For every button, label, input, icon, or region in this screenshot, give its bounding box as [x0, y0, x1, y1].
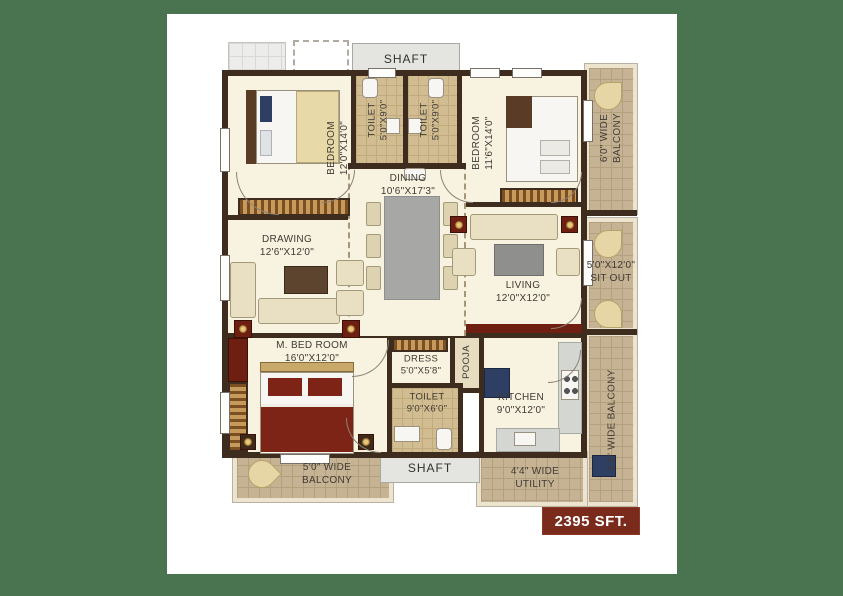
plant-icon [594, 230, 622, 258]
label-balcony-bottom: 5'0" WIDE BALCONY [302, 461, 352, 487]
label-master-bedroom: M. BED ROOM 16'0"X12'0" [276, 339, 348, 365]
toilet3-sink [394, 426, 420, 442]
mbed-pillow [268, 378, 302, 396]
area-badge: 2395 SFT. [542, 507, 640, 535]
label-pooja: POOJA [461, 345, 473, 379]
bed2-pillow [540, 140, 570, 156]
window [220, 128, 230, 172]
label-sit-out: 5'0"X12'0" SIT OUT [587, 259, 635, 285]
label-balcony-right: 6'0" WIDE BALCONY [598, 113, 624, 163]
drawing-coffee-table [284, 266, 328, 294]
drawing-sofa [258, 298, 340, 324]
drawing-side-table [234, 320, 252, 338]
living-side-table-2 [561, 216, 578, 233]
window [512, 68, 542, 78]
toilet3-wc [436, 428, 452, 450]
window [220, 255, 230, 301]
mbed-side-table [240, 434, 256, 450]
dining-chair [366, 234, 381, 258]
bed1-pillow [260, 96, 272, 122]
label-bedroom1: BEDROOM 12'0"X14'0" [325, 121, 351, 175]
balcony-divider-top [585, 210, 637, 216]
dining-table [384, 196, 440, 300]
window [368, 68, 396, 78]
drawing-side-table-2 [342, 320, 360, 338]
toilet1-wc [362, 78, 378, 98]
label-drawing: DRAWING 12'6"X12'0" [260, 233, 314, 259]
mbed-pillow-2 [308, 378, 342, 396]
dress-rack [392, 338, 448, 352]
living-armchair [452, 248, 476, 276]
dining-chair [366, 266, 381, 290]
bed2-headboard [506, 96, 532, 128]
bed1-pillow-2 [260, 130, 272, 156]
living-side-table [450, 216, 467, 233]
kitchen-sink [514, 432, 536, 446]
label-toilet2: TOILET 5'0"X9'0" [419, 100, 444, 141]
drawing-loveseat [230, 262, 256, 318]
living-sofa [470, 214, 558, 240]
label-living: LIVING 12'0"X12'0" [496, 279, 550, 305]
plant-icon [594, 82, 622, 110]
shaft-bottom-label: SHAFT [408, 461, 452, 475]
drawing-armchair-2 [336, 290, 364, 316]
window [583, 100, 593, 142]
drawing-armchair [336, 260, 364, 286]
toilet2-wc [428, 78, 444, 98]
window [470, 68, 500, 78]
plant-icon [594, 300, 622, 328]
dining-chair [366, 202, 381, 226]
bed1-headboard [246, 90, 256, 164]
living-armchair-2 [556, 248, 580, 276]
label-toilet1: TOILET 5'0"X9'0" [367, 100, 392, 141]
label-utility: 4'4" WIDE UTILITY [511, 465, 559, 491]
label-dress: DRESS 5'0"X5'8" [401, 354, 442, 379]
label-dining: DINING 10'6"X17'3" [381, 172, 435, 198]
window [220, 392, 230, 434]
shaft-top-label: SHAFT [384, 52, 428, 66]
balcony-divider-bottom [585, 329, 637, 335]
mbed-blanket [261, 404, 353, 452]
area-badge-text: 2395 SFT. [555, 513, 628, 530]
label-bedroom2: BEDROOM 11'6"X14'0" [470, 116, 496, 170]
label-toilet3: TOILET 9'0"X6'0" [407, 392, 448, 417]
living-tv-table [494, 244, 544, 276]
label-balcony-54: 5'4" WIDE BALCONY [606, 369, 619, 470]
label-kitchen: KITCHEN 9'0"X12'0" [497, 391, 545, 417]
floor-plan-canvas: SHAFT SHAFT [0, 0, 843, 596]
mbed-cupboard [228, 338, 248, 382]
